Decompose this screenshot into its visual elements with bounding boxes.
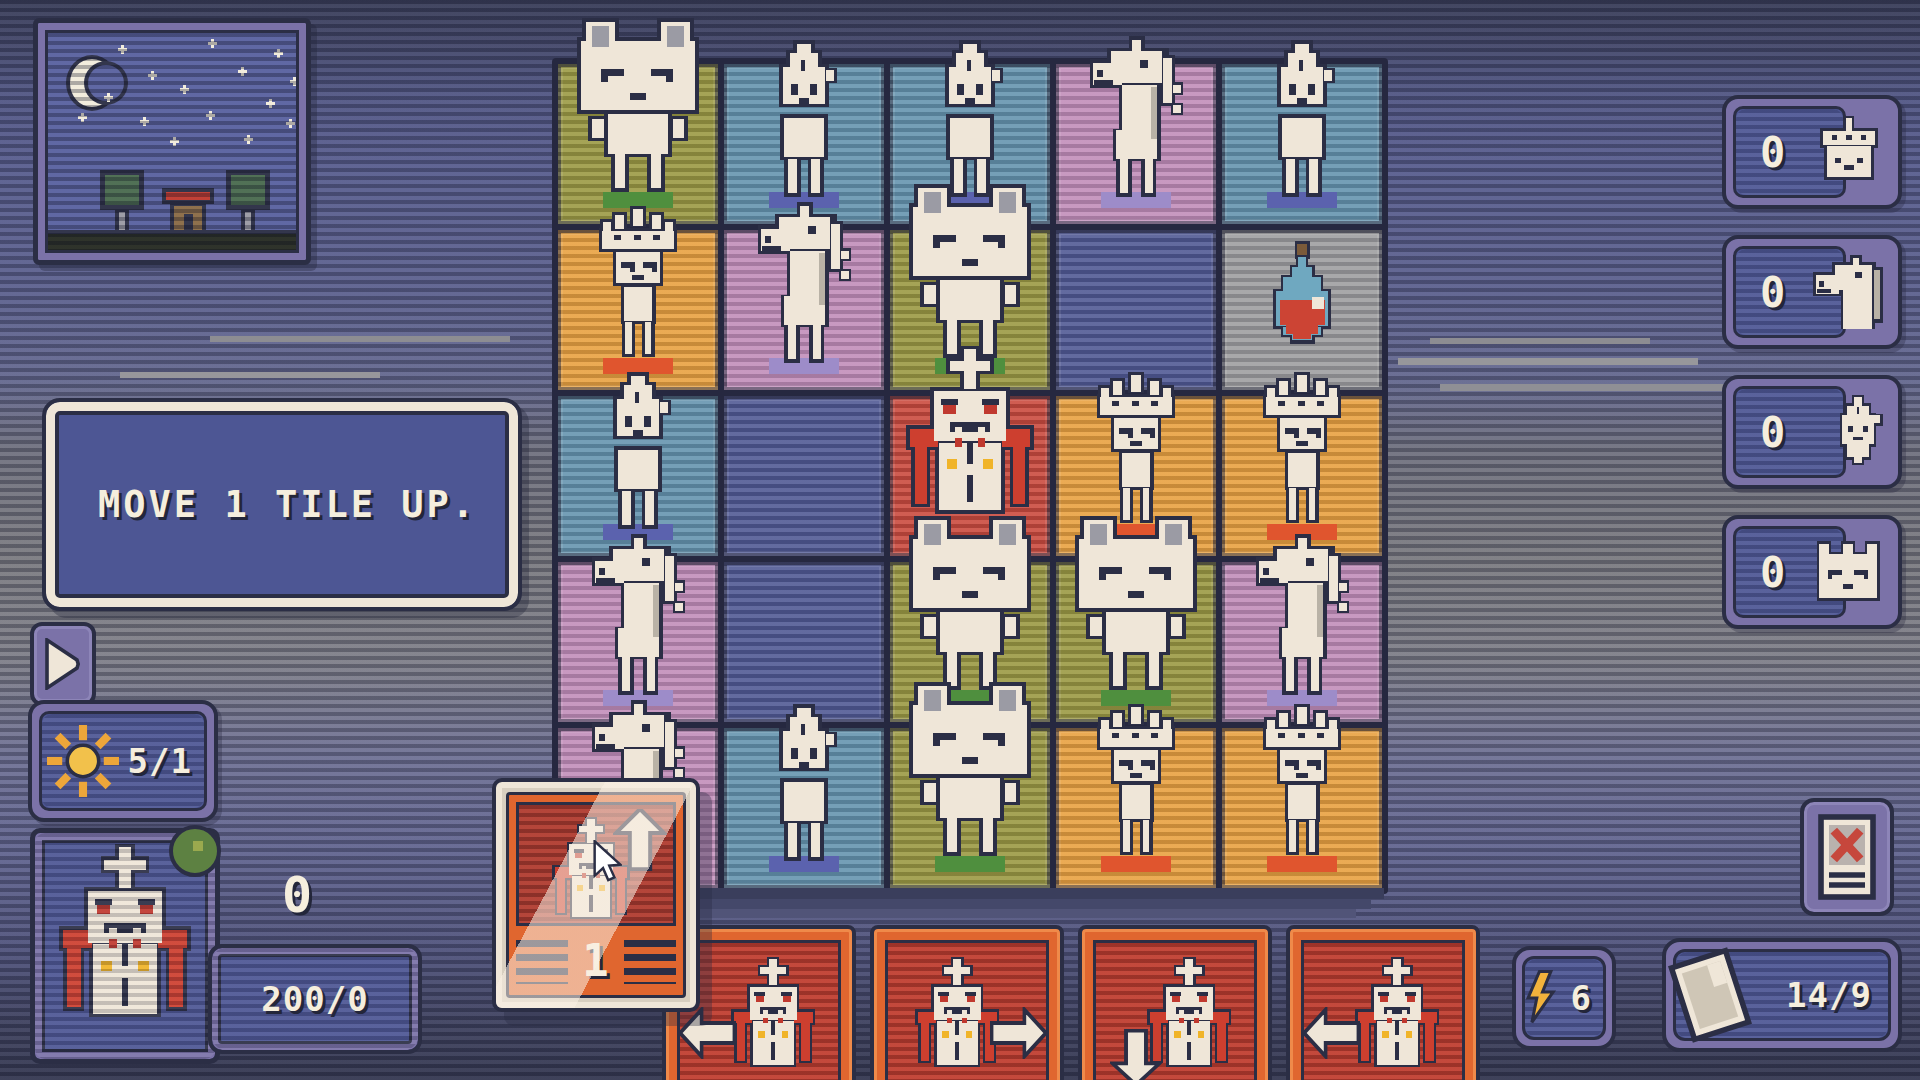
- star-icon: [170, 137, 179, 146]
- board-tile-teal-pawn[interactable]: [724, 728, 884, 888]
- board-tile-orange-crownpawn[interactable]: [1222, 396, 1382, 556]
- cloud-streak: [210, 336, 510, 342]
- card-art: [677, 940, 841, 1080]
- counter-knights-captured: 0: [1722, 235, 1902, 349]
- horse-icon: [1806, 255, 1890, 329]
- knight-piece: [746, 202, 862, 376]
- pawn-piece: [1246, 40, 1358, 208]
- gold-value: 0: [282, 866, 313, 924]
- hand-card-move-left[interactable]: [1286, 925, 1480, 1080]
- board-tile-teal-pawn[interactable]: [724, 64, 884, 224]
- star-icon: [238, 67, 247, 76]
- board-tile-darkblue-empty[interactable]: [724, 562, 884, 722]
- cat-piece: [566, 18, 710, 210]
- star-icon: [148, 71, 157, 80]
- board-tile-olive-cat[interactable]: [1056, 562, 1216, 722]
- board-tile-teal-pawn[interactable]: [558, 396, 718, 556]
- arrow-left-icon: [1304, 1007, 1360, 1059]
- star-icon: [206, 111, 215, 120]
- board-tile-pink-knight[interactable]: [1222, 562, 1382, 722]
- board-tile-olive-cat[interactable]: [890, 728, 1050, 888]
- play-icon: [43, 638, 83, 690]
- star-icon: [286, 119, 295, 128]
- board-tile-pink-knight[interactable]: [558, 562, 718, 722]
- dragged-card-footer: 1: [516, 934, 676, 990]
- star-icon: [274, 49, 283, 58]
- board-tile-darkblue-empty[interactable]: [1056, 230, 1216, 390]
- board-tile-orange-crownpawn[interactable]: [1056, 728, 1216, 888]
- board-tile-darkblue-empty[interactable]: [724, 396, 884, 556]
- arrow-left-icon: [680, 1007, 736, 1059]
- card-art: [1093, 940, 1257, 1080]
- player-portrait[interactable]: [30, 828, 220, 1064]
- star-icon: [244, 135, 253, 144]
- hand-card-move-right[interactable]: [870, 925, 1064, 1080]
- cloud-streak: [120, 372, 380, 378]
- pawn-piece: [748, 40, 860, 208]
- board-tile-pink-knight[interactable]: [1056, 64, 1216, 224]
- counter-pawns-captured: 0: [1722, 375, 1902, 489]
- board: [552, 58, 1388, 894]
- potion-piece: [1252, 241, 1352, 366]
- star-icon: [266, 99, 275, 108]
- star-icon: [290, 77, 296, 86]
- star-icon: [208, 39, 217, 48]
- knight-piece: [1244, 534, 1360, 708]
- knight-piece: [1078, 36, 1194, 210]
- tree-icon: [226, 170, 270, 234]
- queens-captured-value: 0: [1760, 128, 1786, 177]
- sun-icon: [46, 724, 120, 798]
- pawns-captured-value: 0: [1760, 408, 1786, 457]
- vampire-card-art: [723, 957, 823, 1080]
- lightning-icon: [1522, 965, 1560, 1031]
- mouse-cursor-icon: [592, 840, 622, 882]
- cat-piece: [898, 682, 1042, 874]
- cat-piece: [898, 516, 1042, 708]
- deck-value: 14/9: [1786, 975, 1872, 1015]
- sun-counter: 5/1: [28, 700, 218, 822]
- crownpawn-piece: [582, 206, 694, 374]
- dragged-card[interactable]: 1: [492, 778, 700, 1012]
- hand-card-move-down[interactable]: [1078, 925, 1272, 1080]
- pawn-piece: [914, 40, 1026, 208]
- x-card-icon: [1817, 811, 1877, 903]
- star-icon: [78, 113, 87, 122]
- health-value: 200/0: [261, 979, 368, 1019]
- star-icon: [104, 93, 113, 102]
- deck-counter[interactable]: 14/9: [1662, 938, 1902, 1052]
- arrow-down-icon: [1110, 1029, 1162, 1080]
- crownpawn-piece: [1246, 704, 1358, 872]
- house-icon: [166, 188, 210, 234]
- board-tile-orange-crownpawn[interactable]: [1222, 728, 1382, 888]
- message-box: MOVE 1 TILE UP.: [42, 398, 522, 611]
- board-tile-olive-cat[interactable]: [558, 64, 718, 224]
- pawn-piece: [582, 372, 694, 540]
- card-count: 1: [582, 935, 610, 986]
- sun-value: 5/1: [128, 741, 192, 781]
- energy-counter: 6: [1512, 946, 1616, 1050]
- health-panel: 200/0: [208, 944, 422, 1054]
- cloud-streak: [1398, 358, 1698, 365]
- vampire-card-art: [1347, 957, 1447, 1080]
- arrow-right-icon: [990, 1007, 1046, 1059]
- knight-piece: [580, 534, 696, 708]
- card-art: [1301, 940, 1465, 1080]
- tree-icon: [100, 170, 144, 234]
- minimap-panel: [33, 18, 311, 265]
- moon-icon: [66, 55, 118, 111]
- vampire-king-portrait: [46, 844, 204, 1049]
- play-button[interactable]: [30, 622, 96, 706]
- board-tile-teal-pawn[interactable]: [1222, 64, 1382, 224]
- discard-card-button[interactable]: [1800, 798, 1894, 916]
- stripe-decoration: [516, 940, 568, 984]
- night-scene: [48, 33, 296, 250]
- board-tile-pink-knight[interactable]: [724, 230, 884, 390]
- cat-piece: [1064, 516, 1208, 708]
- stripe-decoration: [624, 940, 676, 984]
- vampire-piece: [894, 346, 1046, 544]
- counter-queens-captured: 0: [1722, 95, 1902, 209]
- pawn-piece: [748, 704, 860, 872]
- board-tile-orange-crownpawn[interactable]: [558, 230, 718, 390]
- flame-icon: [1826, 395, 1890, 469]
- counter-kings-captured: 0: [1722, 515, 1902, 629]
- game-screen: MOVE 1 TILE UP. 0000 5/1 0 200/0 6 14/: [0, 0, 1920, 1080]
- objective-text: MOVE 1 TILE UP.: [46, 483, 477, 526]
- energy-value: 6: [1571, 978, 1592, 1018]
- crownpawn-piece: [1246, 372, 1358, 540]
- kings-captured-value: 0: [1760, 548, 1786, 597]
- catking-icon: [1806, 538, 1890, 606]
- queen-icon: [1808, 116, 1890, 188]
- knights-captured-value: 0: [1760, 268, 1786, 317]
- star-icon: [180, 85, 189, 94]
- cloud-streak: [1430, 338, 1650, 344]
- board-tile-gray-potion[interactable]: [1222, 230, 1382, 390]
- card-art: [885, 940, 1049, 1080]
- crownpawn-piece: [1080, 372, 1192, 540]
- star-icon: [118, 45, 127, 54]
- green-orb-icon: [169, 825, 221, 877]
- ground: [48, 230, 296, 250]
- crownpawn-piece: [1080, 704, 1192, 872]
- star-icon: [140, 117, 149, 126]
